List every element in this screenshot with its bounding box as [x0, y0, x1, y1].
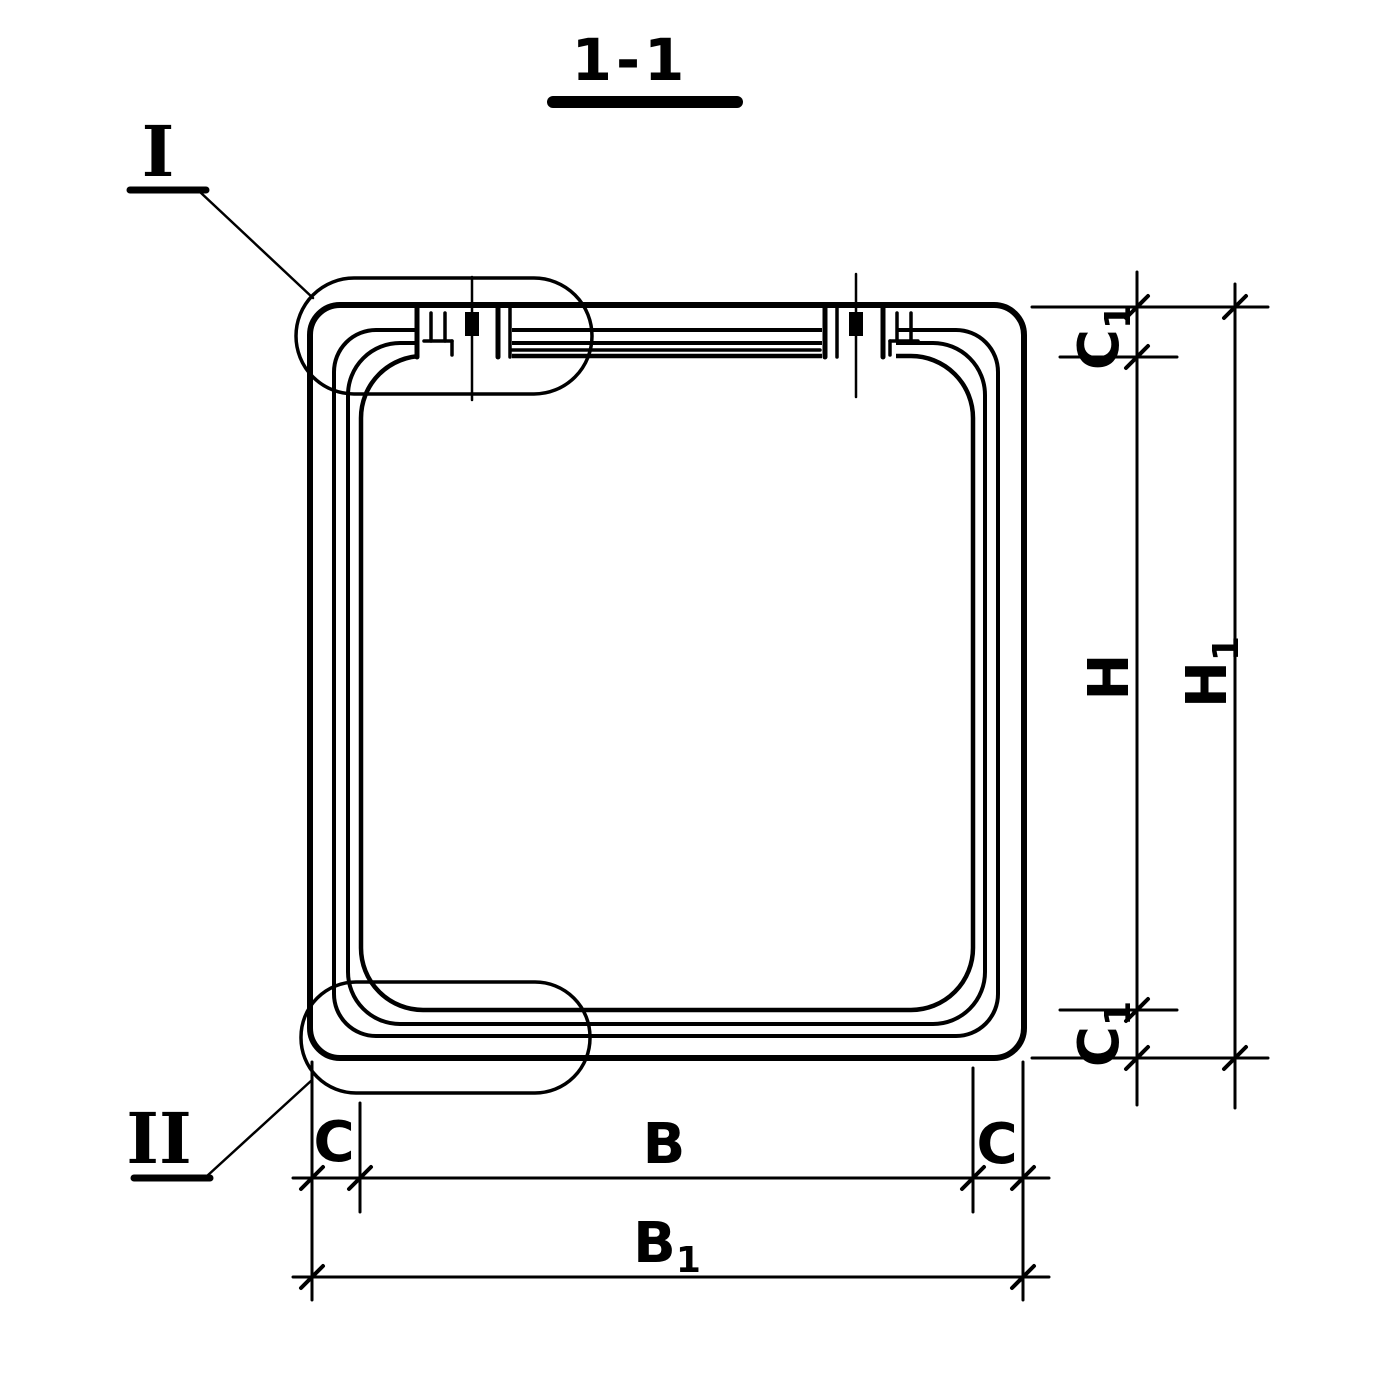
detail-callout-1: I	[130, 110, 313, 298]
dim-label-b1-main: B	[633, 1211, 676, 1276]
detail-callout-1-numeral: I	[142, 110, 175, 193]
dim-label-h: H	[1077, 654, 1142, 701]
dim-label-c1-top-sub: 1	[1098, 304, 1139, 329]
dim-label-c1-top: C1	[1067, 304, 1139, 370]
dim-label-h1-sub: 1	[1206, 636, 1247, 661]
outer-contour	[310, 305, 1024, 1058]
section-title: 1-1	[553, 26, 737, 102]
dim-label-b1: B1	[633, 1211, 701, 1281]
dim-label-c1-top-main: C	[1067, 329, 1132, 370]
right-dimensions: C1 H H1 C1	[1032, 272, 1268, 1108]
bottom-dimensions: C B C B1	[293, 1062, 1049, 1300]
dim-label-c-right-main: C	[976, 1112, 1017, 1177]
dim-label-h1: H1	[1175, 636, 1247, 708]
dim-label-c1-bottom-sub: 1	[1098, 1001, 1139, 1026]
top-joint-right	[822, 274, 918, 397]
dim-label-b1-sub: 1	[676, 1240, 701, 1281]
section-title-text: 1-1	[572, 26, 689, 94]
dim-label-c-left-main: C	[313, 1110, 354, 1175]
dim-label-c1-bottom-main: C	[1067, 1026, 1132, 1067]
detail-callout-2: II	[126, 1080, 312, 1180]
wall-contour-line-1	[334, 330, 998, 1036]
dim-label-c-right: C	[976, 1112, 1017, 1177]
inner-contour	[361, 356, 973, 1010]
culvert-cross-section	[310, 305, 1024, 1058]
drawing-sheet: 1-1 I	[0, 0, 1374, 1379]
detail-callout-1-leader	[200, 192, 313, 298]
top-joint-left	[417, 277, 512, 400]
detail-callout-2-leader	[207, 1080, 312, 1176]
section-1-1-drawing: 1-1 I	[0, 0, 1374, 1379]
dim-label-h-main: H	[1077, 654, 1142, 701]
wall-contour-line-2	[348, 343, 985, 1024]
dim-label-b-main: B	[643, 1112, 686, 1177]
dim-label-c-left: C	[313, 1110, 354, 1175]
detail-callout-2-numeral: II	[126, 1097, 192, 1180]
dim-label-h1-main: H	[1175, 661, 1240, 708]
dim-label-b: B	[643, 1112, 686, 1177]
